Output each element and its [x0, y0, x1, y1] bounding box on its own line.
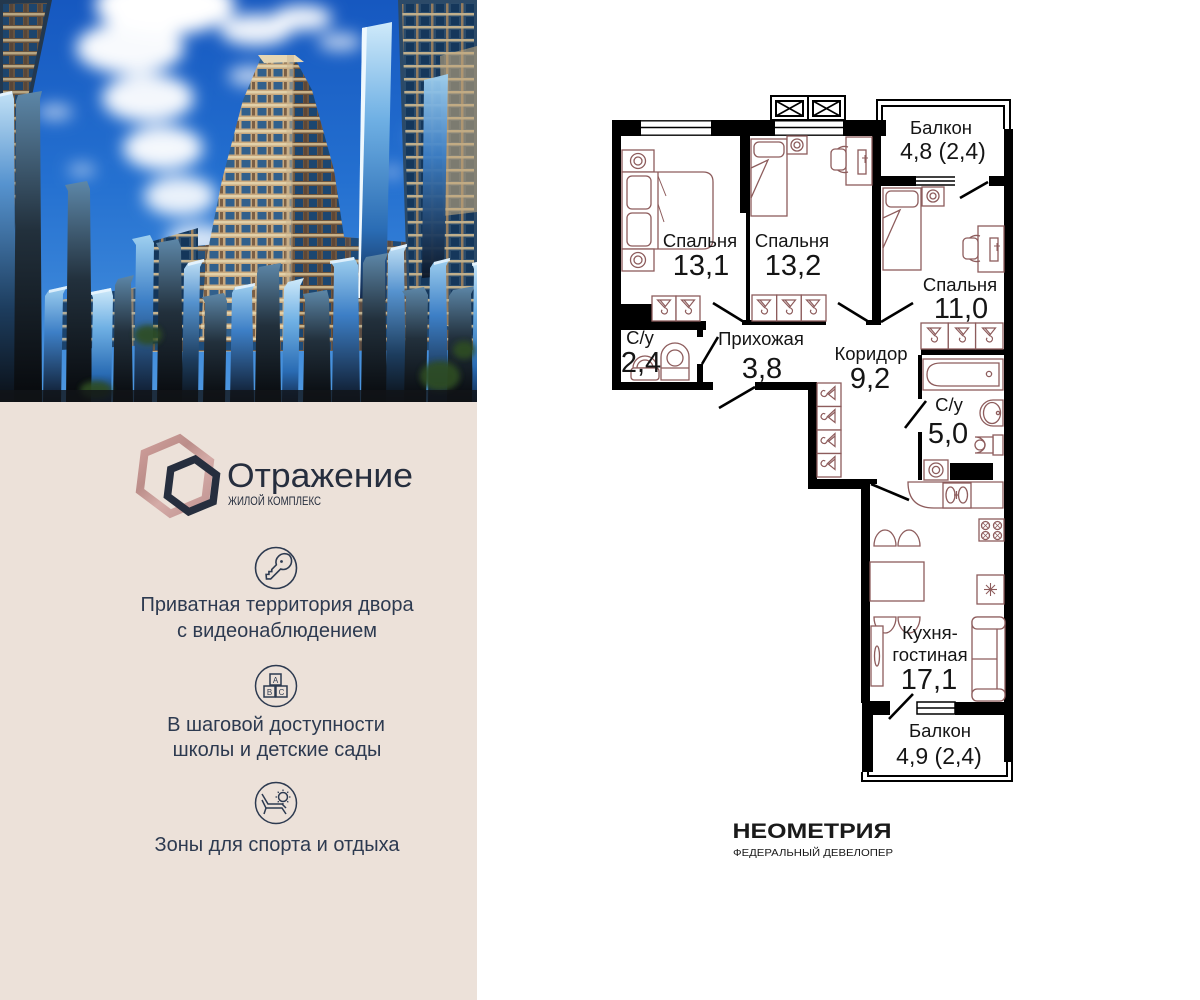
- svg-text:Спальня: Спальня: [663, 230, 737, 251]
- svg-text:4,8 (2,4): 4,8 (2,4): [900, 138, 986, 164]
- svg-text:школы и детские сады: школы и детские сады: [173, 739, 382, 761]
- svg-text:ЖИЛОЙ КОМПЛЕКС: ЖИЛОЙ КОМПЛЕКС: [228, 495, 321, 508]
- svg-text:Приватная территория двора: Приватная территория двора: [140, 594, 414, 616]
- svg-text:A: A: [273, 676, 279, 685]
- svg-text:Балкон: Балкон: [909, 720, 971, 741]
- svg-text:ФЕДЕРАЛЬНЫЙ ДЕВЕЛОПЕР: ФЕДЕРАЛЬНЫЙ ДЕВЕЛОПЕР: [733, 846, 893, 859]
- svg-text:В шаговой доступности: В шаговой доступности: [167, 714, 385, 736]
- svg-text:17,1: 17,1: [901, 664, 957, 696]
- svg-text:с видеонаблюдением: с видеонаблюдением: [177, 620, 377, 642]
- svg-text:4,9 (2,4): 4,9 (2,4): [896, 743, 982, 769]
- svg-text:С/у: С/у: [935, 394, 964, 415]
- svg-text:С/у: С/у: [626, 327, 655, 348]
- svg-text:5,0: 5,0: [928, 418, 968, 450]
- svg-text:13,2: 13,2: [765, 250, 821, 282]
- svg-text:гостиная: гостиная: [892, 644, 967, 665]
- svg-text:Прихожая: Прихожая: [718, 328, 804, 349]
- svg-text:11,0: 11,0: [934, 293, 988, 325]
- svg-text:Зоны для спорта и отдыха: Зоны для спорта и отдыха: [154, 834, 400, 856]
- svg-text:Балкон: Балкон: [910, 117, 972, 138]
- svg-text:Спальня: Спальня: [755, 230, 829, 251]
- svg-text:Спальня: Спальня: [923, 274, 997, 295]
- svg-text:3,8: 3,8: [742, 353, 782, 385]
- svg-text:9,2: 9,2: [850, 363, 890, 395]
- svg-text:13,1: 13,1: [673, 250, 729, 282]
- svg-text:C: C: [279, 688, 285, 697]
- svg-text:B: B: [267, 688, 272, 697]
- svg-text:2,4: 2,4: [621, 347, 661, 379]
- svg-text:НЕОМЕТРИЯ: НЕОМЕТРИЯ: [733, 820, 892, 843]
- svg-text:Кухня-: Кухня-: [902, 622, 958, 643]
- svg-text:Коридор: Коридор: [834, 343, 907, 364]
- svg-text:Отражение: Отражение: [227, 457, 413, 495]
